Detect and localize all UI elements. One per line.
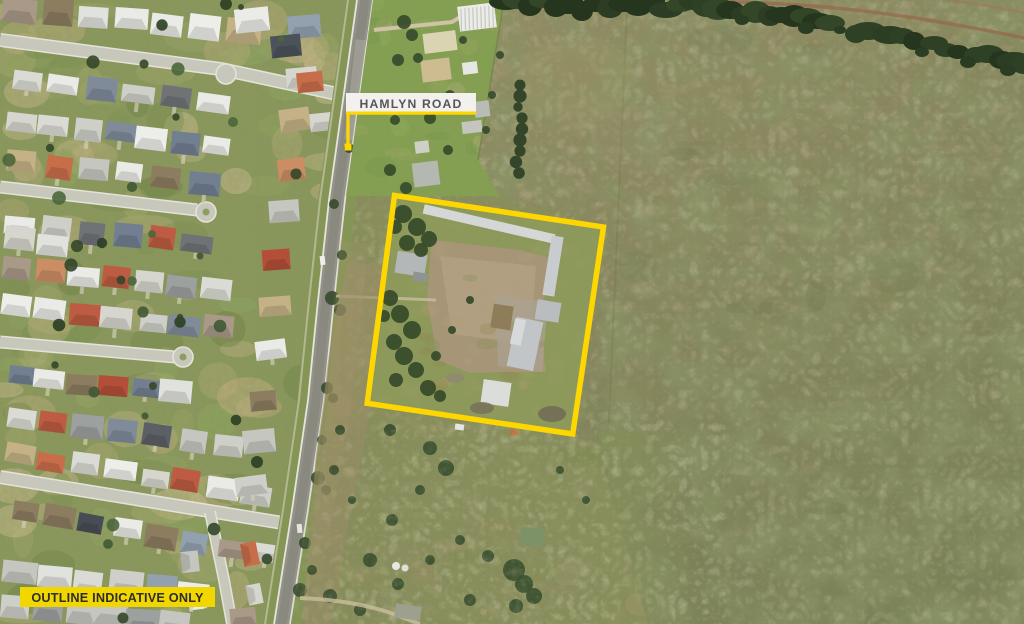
svg-text:OUTLINE INDICATIVE ONLY: OUTLINE INDICATIVE ONLY [31,591,204,605]
svg-text:HAMLYN ROAD: HAMLYN ROAD [360,97,463,111]
